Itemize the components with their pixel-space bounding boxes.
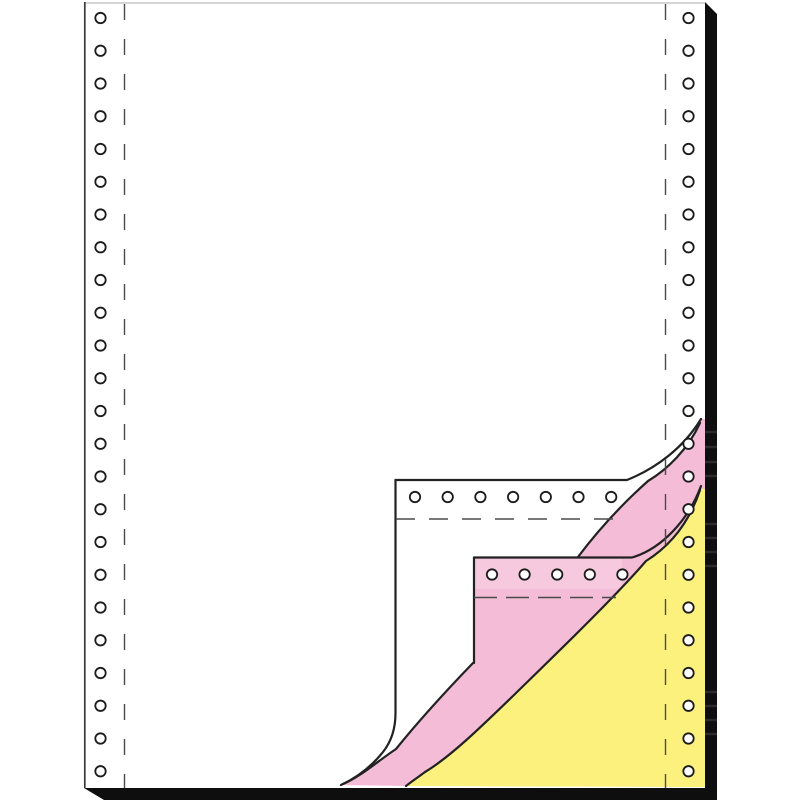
sprocket-hole	[585, 569, 595, 579]
sprocket-hole	[95, 668, 105, 678]
sprocket-hole	[95, 242, 105, 252]
sprocket-hole	[541, 492, 551, 502]
sprocket-hole	[95, 602, 105, 612]
sprocket-hole	[573, 492, 583, 502]
sprocket-hole	[683, 439, 693, 449]
sprocket-hole	[95, 78, 105, 88]
sprocket-hole	[683, 504, 693, 514]
sprocket-hole	[683, 46, 693, 56]
sprocket-hole	[95, 439, 105, 449]
sprocket-hole	[487, 569, 497, 579]
sprocket-hole	[95, 570, 105, 580]
sprocket-hole	[683, 570, 693, 580]
sprocket-hole	[683, 602, 693, 612]
paper-illustration	[0, 0, 800, 800]
sprocket-hole	[683, 111, 693, 121]
sprocket-hole	[519, 569, 529, 579]
sprocket-hole	[95, 471, 105, 481]
sprocket-hole	[683, 13, 693, 23]
sprocket-hole	[683, 373, 693, 383]
sprocket-hole	[95, 701, 105, 711]
sprocket-hole	[95, 733, 105, 743]
sprocket-hole	[95, 537, 105, 547]
sprocket-hole	[683, 701, 693, 711]
sprocket-hole	[683, 733, 693, 743]
sprocket-hole	[443, 492, 453, 502]
sprocket-hole	[95, 766, 105, 776]
sprocket-hole	[683, 471, 693, 481]
sprocket-hole	[683, 275, 693, 285]
sprocket-hole	[95, 209, 105, 219]
sprocket-hole	[410, 492, 420, 502]
sprocket-hole	[95, 635, 105, 645]
sprocket-hole	[95, 111, 105, 121]
sprocket-hole	[508, 492, 518, 502]
sprocket-hole	[95, 13, 105, 23]
sprocket-hole	[683, 78, 693, 88]
sprocket-hole	[95, 406, 105, 416]
sprocket-hole	[95, 308, 105, 318]
sprocket-hole	[95, 504, 105, 514]
sprocket-hole	[95, 340, 105, 350]
sprocket-hole	[683, 209, 693, 219]
product-photo-continuous-paper	[0, 0, 800, 800]
sprocket-hole	[475, 492, 485, 502]
sprocket-hole	[552, 569, 562, 579]
sprocket-hole	[683, 242, 693, 252]
sprocket-hole	[683, 766, 693, 776]
sprocket-hole	[683, 537, 693, 547]
sprocket-hole	[617, 569, 627, 579]
sprocket-hole	[683, 144, 693, 154]
sprocket-hole	[683, 635, 693, 645]
sprocket-hole	[683, 308, 693, 318]
sprocket-hole	[683, 668, 693, 678]
sprocket-hole	[95, 144, 105, 154]
sprocket-hole	[95, 275, 105, 285]
sprocket-hole	[606, 492, 616, 502]
sprocket-hole	[683, 340, 693, 350]
sprocket-hole	[95, 46, 105, 56]
sprocket-hole	[95, 373, 105, 383]
sprocket-hole	[95, 177, 105, 187]
sprocket-hole	[683, 177, 693, 187]
sprocket-hole	[683, 406, 693, 416]
